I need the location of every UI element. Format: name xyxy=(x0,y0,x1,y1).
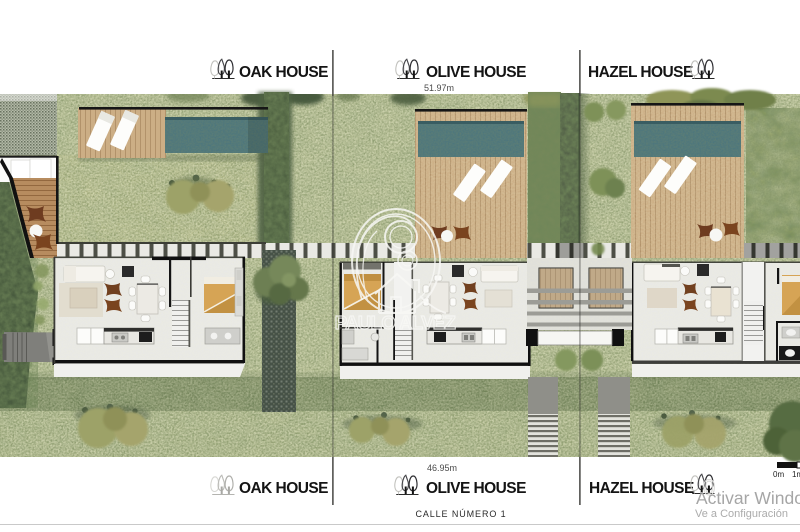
svg-text:OLIVE HOUSE: OLIVE HOUSE xyxy=(426,64,526,81)
svg-text:PAULO ALVEZ: PAULO ALVEZ xyxy=(335,312,456,333)
svg-text:OLIVE HOUSE: OLIVE HOUSE xyxy=(426,480,526,497)
svg-text:1m: 1m xyxy=(792,470,800,479)
svg-text:Activar Windo: Activar Windo xyxy=(696,488,800,508)
svg-text:OAK HOUSE: OAK HOUSE xyxy=(239,64,328,81)
svg-text:OAK HOUSE: OAK HOUSE xyxy=(239,480,328,497)
svg-text:HAZEL HOUSE: HAZEL HOUSE xyxy=(589,480,694,497)
svg-text:CALLE NÚMERO 1: CALLE NÚMERO 1 xyxy=(415,509,506,519)
svg-text:0m: 0m xyxy=(773,470,784,479)
svg-text:HAZEL HOUSE: HAZEL HOUSE xyxy=(588,64,693,81)
svg-text:Ve a Configuración: Ve a Configuración xyxy=(695,508,788,520)
svg-text:51.97m: 51.97m xyxy=(424,83,454,93)
svg-text:46.95m: 46.95m xyxy=(427,463,457,473)
